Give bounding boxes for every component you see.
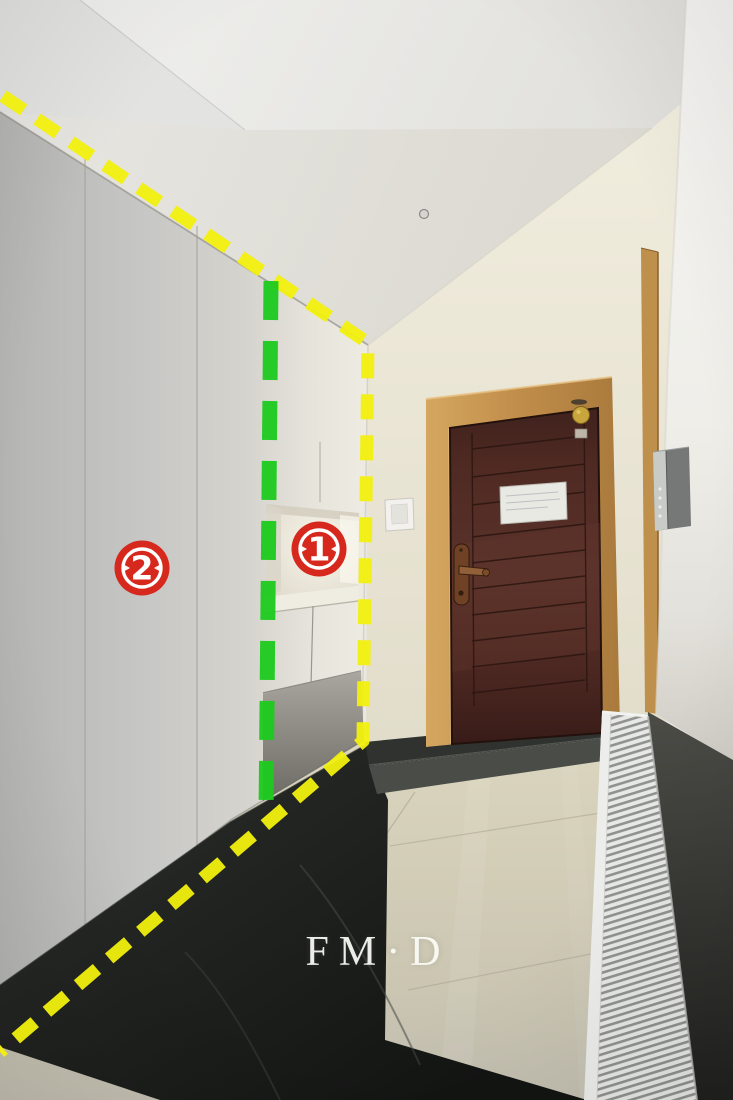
marker-2-number: 2 <box>131 549 154 588</box>
green-dashed-line <box>266 281 271 815</box>
photo-canvas: 1 2 FM·D <box>0 0 733 1100</box>
watermark: FM·D <box>288 928 468 976</box>
marker-1: 1 <box>292 522 347 577</box>
marker-1-number: 1 <box>308 530 331 569</box>
marker-2: 2 <box>115 541 170 596</box>
